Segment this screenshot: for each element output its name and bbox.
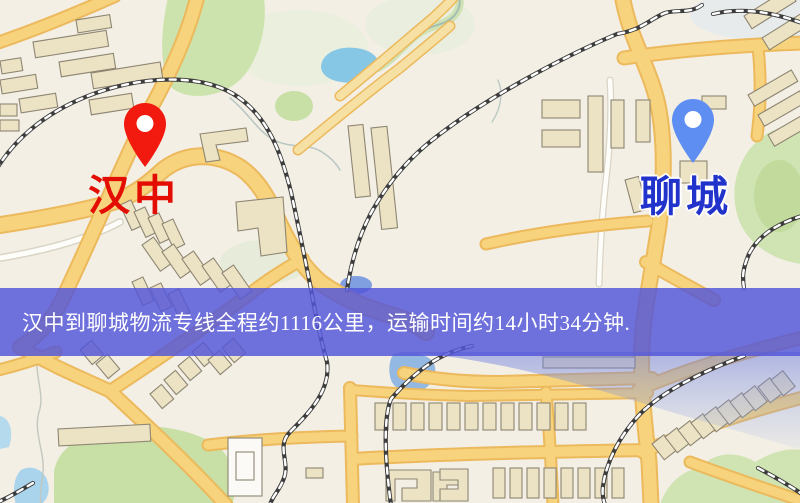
destination-pin-icon[interactable] [668,97,718,165]
route-info-banner: 汉中到聊城物流专线全程约1116公里，运输时间约14小时34分钟. [0,288,800,356]
origin-pin-icon[interactable] [120,101,170,169]
route-info-text: 汉中到聊城物流专线全程约1116公里，运输时间约14小时34分钟. [22,307,630,337]
map-canvas [0,0,800,503]
route-map: 汉中 聊城 汉中到聊城物流专线全程约1116公里，运输时间约14小时34分钟. [0,0,800,503]
origin-label: 汉中 [88,176,180,218]
destination-label: 聊城 [640,177,732,219]
